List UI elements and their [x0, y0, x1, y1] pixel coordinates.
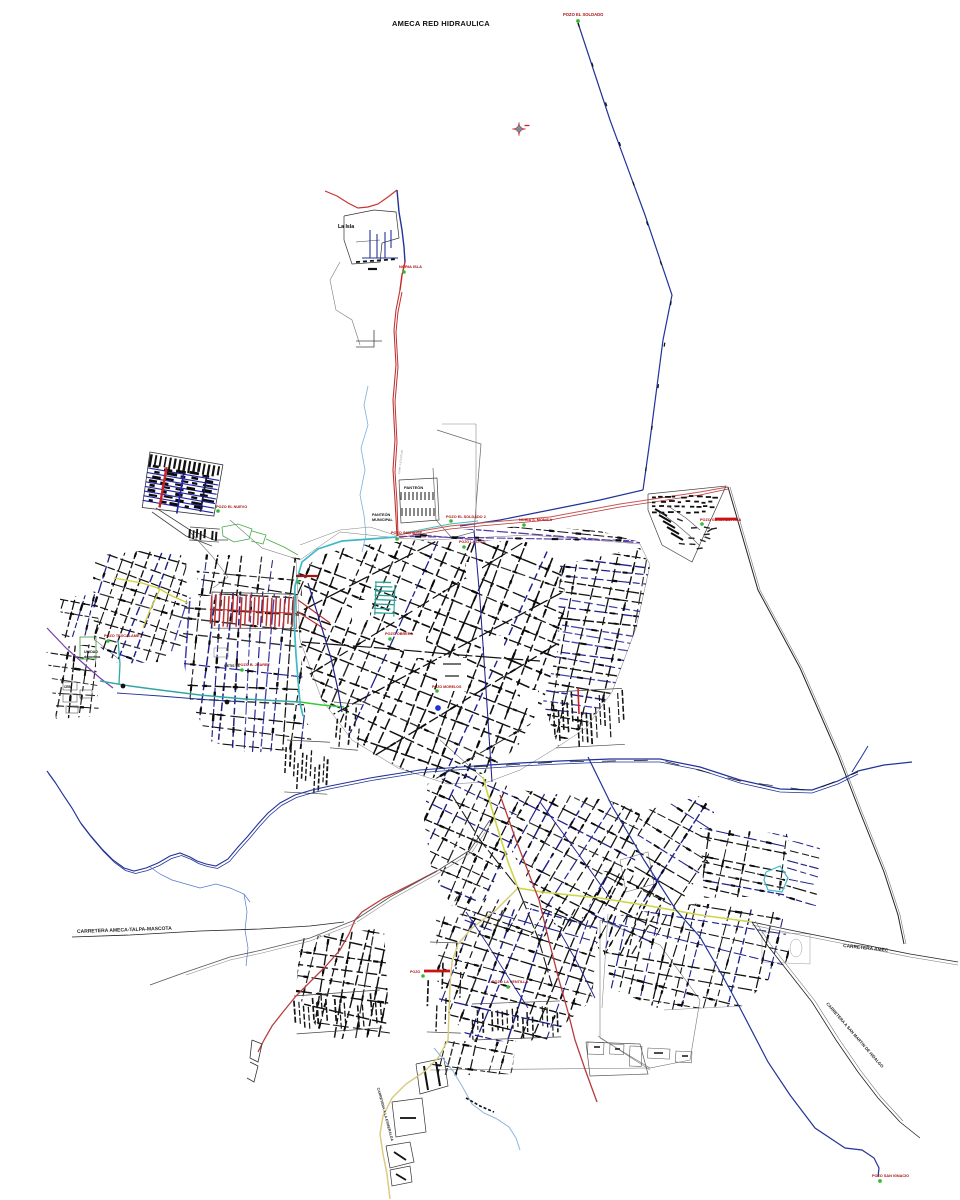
svg-text:NORIA S. MONICA: NORIA S. MONICA — [519, 518, 552, 522]
svg-text:POZO OBRERA: POZO OBRERA — [385, 632, 414, 636]
svg-text:UNIDAD: UNIDAD — [84, 650, 98, 654]
svg-text:AMECA RED HIDRAULICA: AMECA RED HIDRAULICA — [392, 19, 490, 28]
svg-text:POZO B. JUAREZ: POZO B. JUAREZ — [238, 663, 271, 667]
svg-text:CETIS 63: CETIS 63 — [224, 664, 240, 668]
svg-text:PANTEÓN: PANTEÓN — [404, 485, 423, 490]
svg-text:POZO TEXCALAME: POZO TEXCALAME — [104, 634, 140, 638]
svg-text:POZO SAN IGNACIO: POZO SAN IGNACIO — [872, 1174, 909, 1178]
svg-text:POZO EL NUEVO: POZO EL NUEVO — [216, 505, 247, 509]
svg-text:POZO: POZO — [410, 970, 420, 974]
svg-text:deportiva: deportiva — [84, 655, 101, 659]
svg-text:PANTEÓN: PANTEÓN — [372, 512, 391, 517]
svg-text:La Isla: La Isla — [338, 224, 354, 230]
svg-text:CEB: CEB — [64, 685, 71, 689]
svg-text:MUNICIPAL: MUNICIPAL — [372, 518, 393, 522]
svg-text:NORIA ISLA: NORIA ISLA — [399, 264, 422, 269]
svg-text:POZO EL SOLDADO 2: POZO EL SOLDADO 2 — [446, 515, 486, 519]
svg-text:POZO MORELOS: POZO MORELOS — [432, 685, 462, 689]
svg-text:POZO EL SOLDADO: POZO EL SOLDADO — [563, 12, 604, 17]
